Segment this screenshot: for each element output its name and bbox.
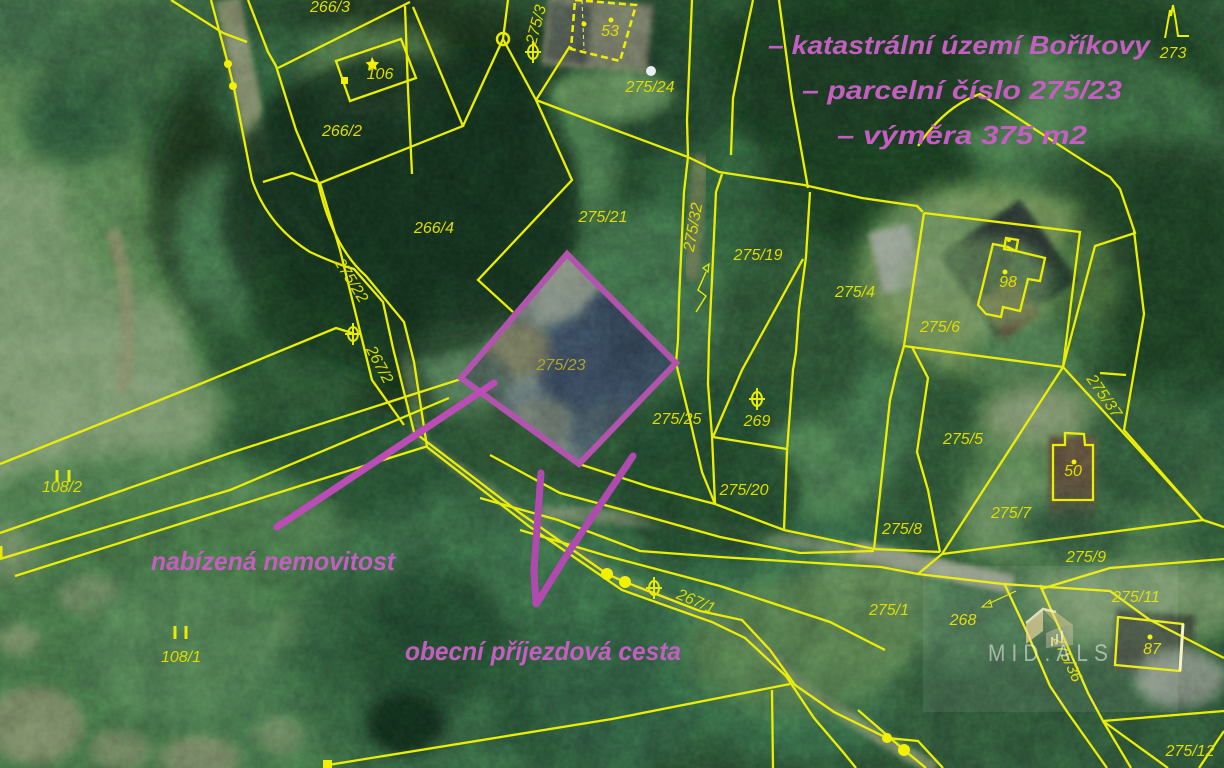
svg-text:266/3: 266/3 bbox=[309, 0, 350, 16]
svg-text:275/25: 275/25 bbox=[652, 411, 702, 428]
svg-text:– katastrální území Boříkovy: – katastrální území Boříkovy bbox=[768, 30, 1152, 60]
svg-text:– parcelní číslo 275/23: – parcelní číslo 275/23 bbox=[802, 75, 1123, 105]
svg-text:50: 50 bbox=[1064, 463, 1082, 480]
svg-text:266/4: 266/4 bbox=[413, 220, 454, 237]
svg-text:275/9: 275/9 bbox=[1065, 549, 1106, 566]
svg-text:275/24: 275/24 bbox=[625, 79, 675, 96]
svg-text:275/19: 275/19 bbox=[733, 247, 783, 264]
svg-text:obecní příjezdová cesta: obecní příjezdová cesta bbox=[405, 636, 681, 666]
svg-text:106: 106 bbox=[367, 66, 394, 83]
svg-text:275/5: 275/5 bbox=[942, 431, 983, 448]
svg-text:275/6: 275/6 bbox=[919, 319, 960, 336]
svg-text:275/23: 275/23 bbox=[536, 357, 586, 374]
svg-text:53: 53 bbox=[601, 23, 619, 40]
svg-text:108/1: 108/1 bbox=[161, 649, 201, 666]
svg-text:275/8: 275/8 bbox=[881, 521, 922, 538]
svg-text:269: 269 bbox=[743, 413, 771, 430]
svg-text:nabízená nemovitost: nabízená nemovitost bbox=[151, 546, 396, 576]
svg-text:108/2: 108/2 bbox=[42, 479, 82, 496]
svg-text:266/2: 266/2 bbox=[321, 123, 362, 140]
svg-text:275/12: 275/12 bbox=[1165, 743, 1215, 760]
svg-text:275/4: 275/4 bbox=[834, 284, 875, 301]
svg-text:MID.ALS: MID.ALS bbox=[988, 640, 1114, 667]
svg-text:275/21: 275/21 bbox=[578, 209, 628, 226]
svg-text:275/1: 275/1 bbox=[868, 602, 909, 619]
svg-text:– výměra 375 m2: – výměra 375 m2 bbox=[837, 120, 1088, 150]
svg-text:275/7: 275/7 bbox=[990, 505, 1032, 522]
svg-text:273: 273 bbox=[1159, 45, 1187, 62]
svg-text:275/20: 275/20 bbox=[719, 482, 769, 499]
svg-text:98: 98 bbox=[999, 274, 1017, 291]
